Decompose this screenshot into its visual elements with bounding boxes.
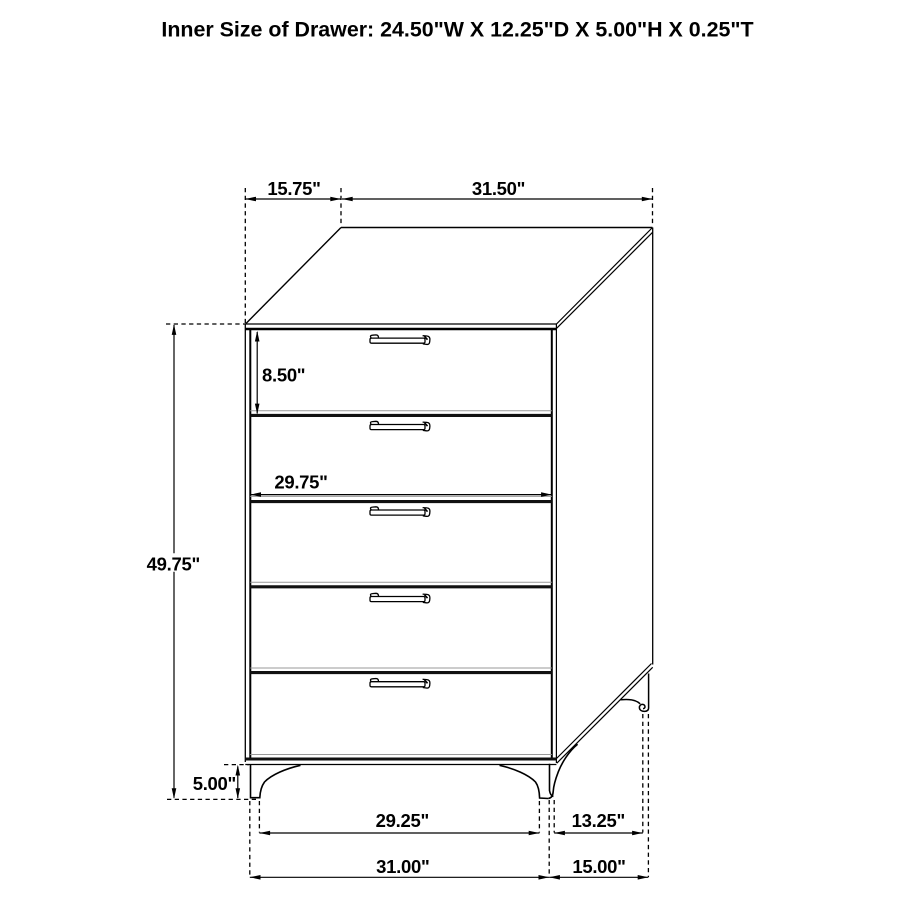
svg-text:13.25": 13.25" bbox=[572, 810, 625, 831]
svg-text:8.50": 8.50" bbox=[262, 365, 305, 386]
svg-text:31.00": 31.00" bbox=[376, 856, 429, 877]
svg-text:15.75": 15.75" bbox=[267, 178, 320, 199]
svg-text:31.50": 31.50" bbox=[472, 178, 525, 199]
svg-text:29.25": 29.25" bbox=[376, 810, 429, 831]
svg-text:49.75": 49.75" bbox=[147, 553, 200, 574]
svg-text:29.75": 29.75" bbox=[274, 472, 327, 493]
svg-text:15.00": 15.00" bbox=[572, 856, 625, 877]
svg-text:5.00": 5.00" bbox=[193, 773, 236, 794]
svg-text:Inner Size of Drawer: 24.50"W: Inner Size of Drawer: 24.50"W X 12.25"D … bbox=[161, 18, 753, 42]
